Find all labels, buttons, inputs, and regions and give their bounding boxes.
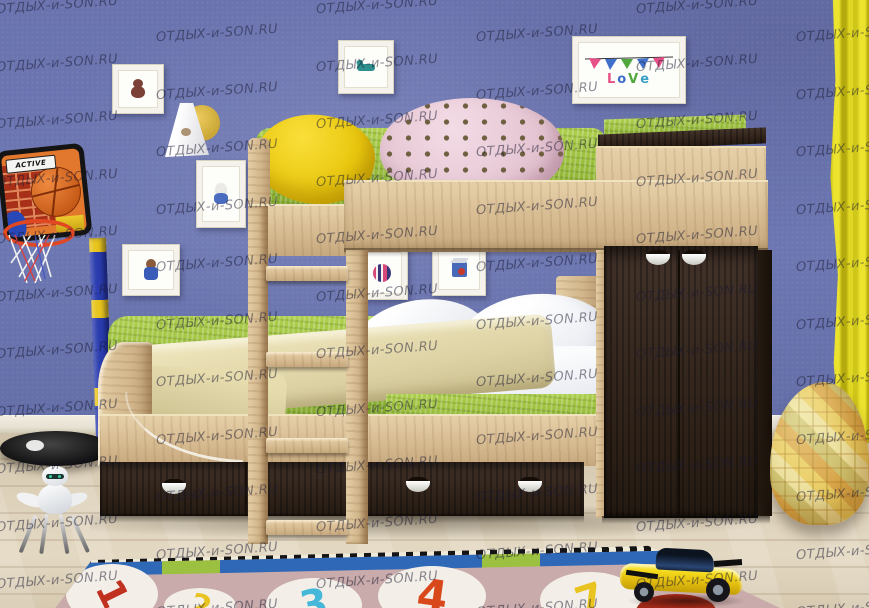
basketball-base [0,431,112,466]
frame-mat [202,166,240,222]
bunny-motif [214,183,228,205]
ball-motif [373,264,391,282]
bear-overalls-motif [143,259,159,281]
car-racing-stripe [714,559,742,567]
drawer-handle [518,477,542,493]
rug-character: 3 [296,580,331,608]
ladder-rung [266,438,348,453]
robot-leg [59,514,70,554]
ladder-left-rail [248,206,268,544]
robot-toy [16,466,90,554]
teddy-bear-motif [130,79,146,99]
wardrobe-door-seam [678,250,680,516]
love-letter: o [617,74,628,86]
robot-leg [19,515,38,554]
drawer-handle [406,477,430,493]
toy-car [618,548,750,608]
basketball-base-hub [26,440,44,451]
basketball-net [5,233,65,287]
love-letter: e [640,74,651,86]
rug-letter-circle: 2 [164,588,236,608]
cube-motif [452,262,467,277]
lamp-decal [181,128,191,136]
robot-leg [39,514,49,554]
drawer-seam [245,462,247,516]
love-letter: L [607,74,617,86]
robot-eye [49,475,52,478]
frame-mat: LoVe [578,42,680,98]
frame-mat [118,70,158,108]
ladder-rung [266,520,348,535]
horse-motif [357,61,375,74]
rug-character: 1 [86,572,137,608]
drawer-handle [162,479,186,495]
ladder-right-rail [346,250,368,544]
frame-bunny [196,160,246,228]
room-photo: LoVe ACTIVE [0,0,869,608]
rug-letter-circle: 3 [266,578,362,608]
frame-horse [338,40,394,94]
frame-mat [344,46,388,88]
upper-bunk-front-rail [344,180,768,252]
robot-eye [58,475,61,478]
frame-mat [128,250,174,290]
car-windows [655,547,714,572]
rug-character: 7 [570,574,611,608]
ladder-rung [266,352,348,367]
ladder-rung [266,266,348,281]
rug-character: 2 [185,586,216,608]
robot-body [38,484,72,514]
love-text: LoVe [607,74,651,86]
wardrobe [604,246,758,518]
frame-mat [362,252,402,294]
love-letter: V [628,74,640,86]
car-wheel [706,578,730,602]
rug-character: 4 [413,569,450,608]
robot-leg [70,515,90,553]
frame-teddy-bear [112,64,164,114]
frame-bear-overalls [122,244,180,296]
wardrobe-bottom-shadow [602,516,770,524]
wardrobe-handle [646,250,670,266]
bunting-flags-motif [583,55,675,73]
car-wheel [634,582,654,602]
wardrobe-handle [682,250,706,266]
frame-love-banner: LoVe [572,36,686,104]
